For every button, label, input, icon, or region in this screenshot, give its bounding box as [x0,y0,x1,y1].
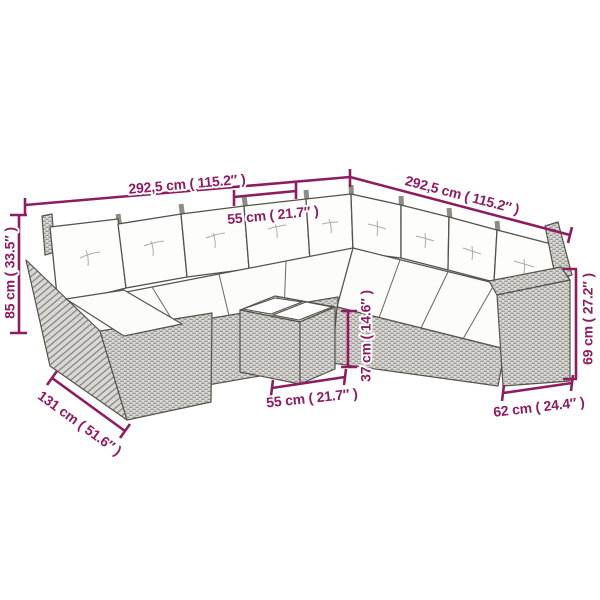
dimension-back-height: 85 cm ( 33.5″ ) [2,215,27,333]
diagram-canvas: 292,5 cm ( 115.2″ ) 292,5 cm ( 115.2″ ) … [0,0,600,600]
product-dimension-diagram: 292,5 cm ( 115.2″ ) 292,5 cm ( 115.2″ ) … [0,0,600,600]
back-cushion [118,214,187,288]
dimension-label: 62 cm ( 24.4″ ) [492,394,585,420]
dimension-label: 37 cm ( 14.6″ ) [358,290,374,382]
dimension-label: 85 cm ( 33.5″ ) [2,227,18,319]
armrest-front-face [497,280,570,386]
dimension-label: 292,5 cm ( 115.2″ ) [128,171,246,197]
coffee-table [240,296,335,384]
dimension-label: 55 cm ( 21.7″ ) [265,385,358,410]
table-side-face [240,310,300,384]
dimension-label: 69 cm ( 27.2″ ) [580,273,596,365]
